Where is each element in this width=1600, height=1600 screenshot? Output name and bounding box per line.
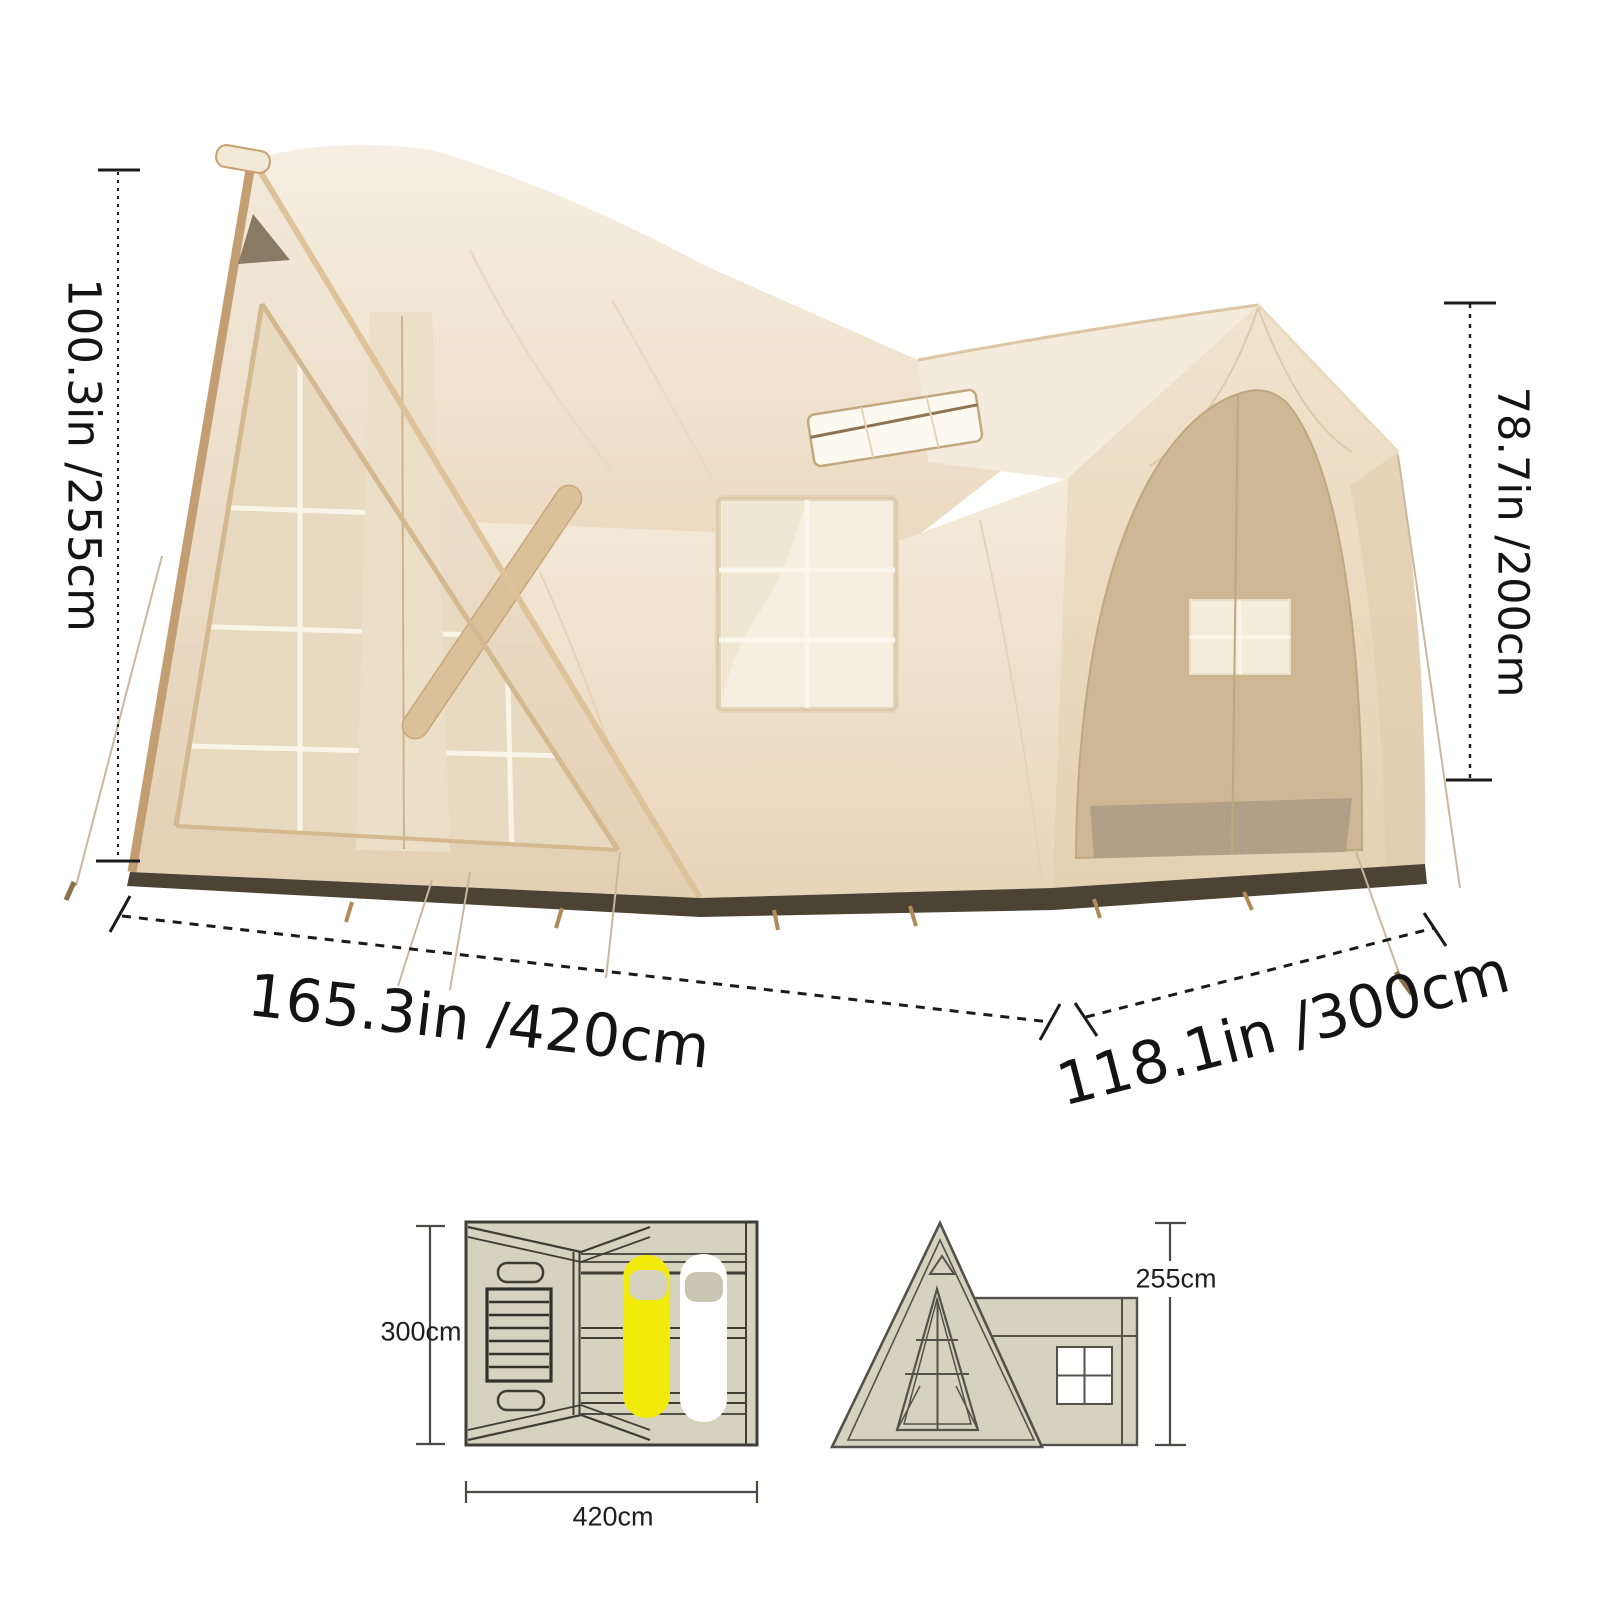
front-elevation-diagram [832, 1223, 1186, 1447]
peak-cap [215, 143, 272, 174]
tent-photo [66, 143, 1460, 994]
plan-mat-top [498, 1263, 543, 1282]
scene-graphics [0, 0, 1600, 1600]
plan-pillow-white [685, 1272, 723, 1302]
dimension-label-cabin-height: 78.7in /200cm [1491, 387, 1534, 698]
side-window [718, 498, 896, 710]
plan-pillow-yellow [629, 1270, 667, 1300]
floor-plan-diagram [416, 1222, 757, 1503]
floor-plan-width-label: 420cm [572, 1504, 653, 1531]
floor-plan-depth-label: 300cm [380, 1319, 461, 1346]
dimension-label-total-height: 100.3in /255cm [62, 278, 107, 632]
plan-width-dim-line [466, 1481, 757, 1503]
elevation-height-label: 255cm [1131, 1266, 1220, 1293]
product-dimension-diagram: { "dimension_labels": { "total_height": … [0, 0, 1600, 1600]
elevation-height-dim-line [1155, 1223, 1186, 1445]
plan-mat-bottom [498, 1391, 544, 1410]
cabin-floor [1090, 798, 1352, 858]
